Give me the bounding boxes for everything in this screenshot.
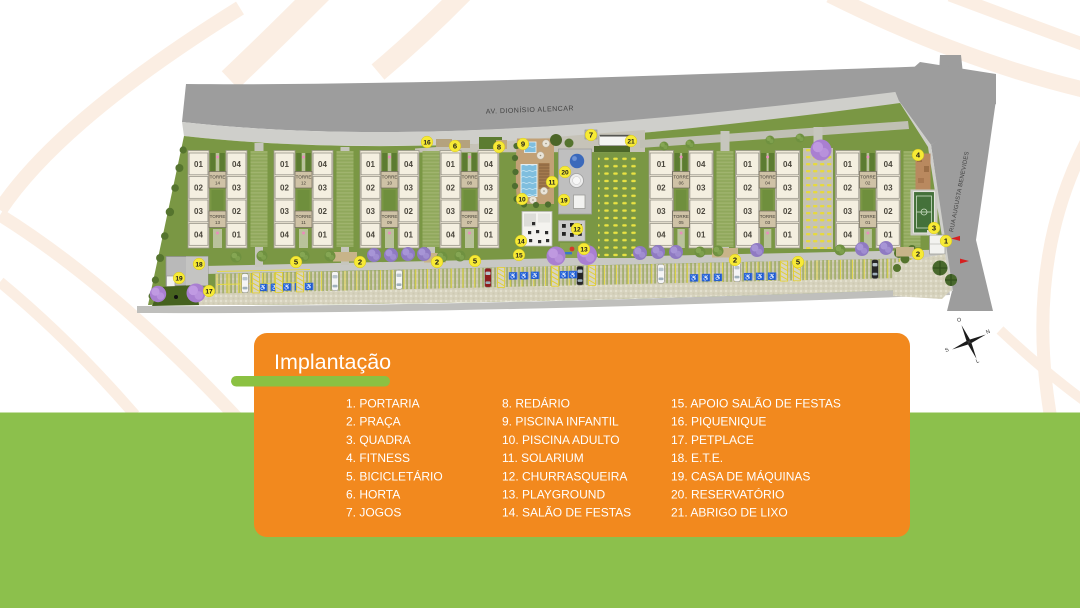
svg-text:04: 04 (446, 230, 455, 239)
svg-text:02: 02 (280, 183, 289, 192)
svg-text:16. PIQUENIQUE: 16. PIQUENIQUE (671, 415, 766, 429)
svg-text:02: 02 (843, 183, 852, 192)
svg-text:01: 01 (843, 160, 852, 169)
svg-text:♿: ♿ (714, 274, 722, 282)
svg-text:12: 12 (301, 181, 307, 186)
svg-text:♿: ♿ (259, 284, 267, 292)
svg-text:10: 10 (387, 181, 393, 186)
svg-text:♿: ♿ (744, 273, 752, 281)
svg-text:♿: ♿ (768, 272, 776, 280)
svg-text:02: 02 (404, 207, 413, 216)
svg-text:9. PISCINA INFANTIL: 9. PISCINA INFANTIL (502, 415, 619, 429)
svg-text:7. JOGOS: 7. JOGOS (346, 506, 401, 520)
svg-text:04: 04 (743, 230, 752, 239)
svg-text:TORRE: TORRE (382, 175, 398, 180)
svg-text:03: 03 (404, 183, 413, 192)
svg-text:TORRE: TORRE (760, 214, 776, 219)
svg-text:2: 2 (733, 256, 737, 265)
svg-text:08: 08 (467, 181, 473, 186)
svg-text:01: 01 (404, 230, 413, 239)
svg-text:♿: ♿ (305, 283, 313, 291)
svg-text:02: 02 (697, 207, 706, 216)
svg-text:TORRE: TORRE (860, 175, 876, 180)
svg-text:♿: ♿ (531, 272, 539, 280)
svg-text:04: 04 (697, 160, 706, 169)
svg-text:2. PRAÇA: 2. PRAÇA (346, 415, 401, 429)
svg-text:01: 01 (366, 160, 375, 169)
svg-text:01: 01 (194, 160, 203, 169)
svg-text:7: 7 (589, 131, 593, 140)
svg-text:TORRE: TORRE (462, 175, 478, 180)
svg-text:12. CHURRASQUEIRA: 12. CHURRASQUEIRA (502, 469, 627, 483)
svg-text:02: 02 (484, 207, 493, 216)
svg-text:TORRE: TORRE (673, 175, 689, 180)
svg-text:03: 03 (884, 183, 893, 192)
svg-text:04: 04 (280, 230, 289, 239)
svg-text:02: 02 (446, 183, 455, 192)
svg-text:6. HORTA: 6. HORTA (346, 488, 400, 502)
svg-text:13: 13 (215, 220, 221, 225)
svg-text:02: 02 (743, 183, 752, 192)
svg-text:05: 05 (679, 220, 685, 225)
svg-text:2: 2 (435, 258, 439, 267)
svg-text:♿: ♿ (509, 272, 517, 280)
svg-text:04: 04 (194, 230, 203, 239)
svg-text:03: 03 (446, 207, 455, 216)
svg-text:02: 02 (232, 207, 241, 216)
svg-text:4. FITNESS: 4. FITNESS (346, 451, 410, 465)
svg-text:18. E.T.E.: 18. E.T.E. (671, 451, 723, 465)
svg-text:04: 04 (404, 160, 413, 169)
svg-text:10. PISCINA ADULTO: 10. PISCINA ADULTO (502, 433, 620, 447)
svg-text:01: 01 (446, 160, 455, 169)
svg-text:TORRE: TORRE (210, 175, 226, 180)
svg-text:03: 03 (366, 207, 375, 216)
svg-text:20. RESERVATÓRIO: 20. RESERVATÓRIO (671, 487, 784, 502)
svg-text:TORRE: TORRE (296, 214, 312, 219)
svg-text:TORRE: TORRE (296, 175, 312, 180)
svg-text:17: 17 (205, 289, 213, 296)
svg-text:14. SALÃO DE FESTAS: 14. SALÃO DE FESTAS (502, 506, 631, 520)
svg-text:15. APOIO SALÃO DE FESTAS: 15. APOIO SALÃO DE FESTAS (671, 397, 841, 411)
svg-text:♿: ♿ (690, 274, 698, 282)
svg-text:♿: ♿ (560, 271, 568, 279)
svg-text:8: 8 (497, 143, 501, 152)
svg-text:02: 02 (194, 183, 203, 192)
svg-text:3. QUADRA: 3. QUADRA (346, 433, 411, 447)
svg-text:2: 2 (358, 258, 362, 267)
svg-text:03: 03 (232, 183, 241, 192)
svg-text:02: 02 (865, 181, 871, 186)
svg-text:04: 04 (484, 160, 493, 169)
svg-text:01: 01 (743, 160, 752, 169)
svg-text:04: 04 (783, 160, 792, 169)
svg-text:01: 01 (697, 230, 706, 239)
svg-text:8. REDÁRIO: 8. REDÁRIO (502, 396, 570, 411)
svg-text:20: 20 (561, 170, 569, 177)
svg-text:09: 09 (387, 220, 393, 225)
svg-text:01: 01 (318, 230, 327, 239)
svg-text:04: 04 (318, 160, 327, 169)
svg-text:TORRE: TORRE (382, 214, 398, 219)
svg-text:11. SOLARIUM: 11. SOLARIUM (502, 451, 584, 465)
svg-text:16: 16 (423, 140, 431, 147)
svg-text:TORRE: TORRE (760, 175, 776, 180)
svg-text:21: 21 (627, 139, 635, 146)
svg-text:03: 03 (194, 207, 203, 216)
svg-text:04: 04 (657, 230, 666, 239)
svg-text:14: 14 (215, 181, 221, 186)
svg-text:11: 11 (301, 220, 306, 225)
svg-text:01: 01 (783, 230, 792, 239)
svg-text:10: 10 (518, 197, 526, 204)
svg-text:9: 9 (521, 140, 525, 149)
svg-text:02: 02 (318, 207, 327, 216)
svg-text:01: 01 (865, 220, 871, 225)
svg-text:19: 19 (560, 198, 568, 205)
svg-text:♿: ♿ (283, 283, 291, 291)
svg-text:03: 03 (843, 207, 852, 216)
svg-text:11: 11 (549, 180, 556, 187)
svg-text:TORRE: TORRE (210, 214, 226, 219)
svg-text:19: 19 (175, 276, 183, 283)
svg-text:03: 03 (318, 183, 327, 192)
svg-text:01: 01 (280, 160, 289, 169)
svg-text:04: 04 (366, 230, 375, 239)
svg-text:13: 13 (580, 247, 588, 254)
svg-text:3: 3 (932, 224, 936, 233)
svg-text:♿: ♿ (569, 271, 577, 279)
svg-text:03: 03 (697, 183, 706, 192)
svg-text:2: 2 (916, 250, 920, 259)
svg-text:04: 04 (843, 230, 852, 239)
svg-text:01: 01 (657, 160, 666, 169)
svg-text:TORRE: TORRE (860, 214, 876, 219)
svg-text:14: 14 (517, 239, 525, 246)
svg-text:02: 02 (657, 183, 666, 192)
svg-text:21. ABRIGO DE LIXO: 21. ABRIGO DE LIXO (671, 506, 788, 520)
svg-text:TORRE: TORRE (462, 214, 478, 219)
svg-text:1. PORTARIA: 1. PORTARIA (346, 397, 420, 411)
svg-text:12: 12 (573, 227, 581, 234)
svg-text:19. CASA DE MÁQUINAS: 19. CASA DE MÁQUINAS (671, 468, 810, 483)
svg-text:06: 06 (679, 181, 685, 186)
svg-text:01: 01 (232, 230, 241, 239)
svg-text:♿: ♿ (520, 272, 528, 280)
svg-text:03: 03 (783, 183, 792, 192)
svg-text:03: 03 (765, 220, 771, 225)
svg-text:TORRE: TORRE (673, 214, 689, 219)
svg-text:03: 03 (280, 207, 289, 216)
svg-text:02: 02 (366, 183, 375, 192)
svg-text:02: 02 (884, 207, 893, 216)
svg-text:17. PETPLACE: 17. PETPLACE (671, 433, 754, 447)
svg-text:01: 01 (884, 230, 893, 239)
svg-text:03: 03 (657, 207, 666, 216)
svg-text:18: 18 (195, 262, 203, 269)
svg-text:Implantação: Implantação (274, 350, 391, 374)
svg-text:15: 15 (515, 253, 523, 260)
svg-text:5. BICICLETÁRIO: 5. BICICLETÁRIO (346, 468, 443, 483)
svg-text:03: 03 (743, 207, 752, 216)
svg-text:02: 02 (783, 207, 792, 216)
svg-text:04: 04 (232, 160, 241, 169)
svg-text:6: 6 (453, 142, 457, 151)
svg-text:03: 03 (484, 183, 493, 192)
svg-text:04: 04 (884, 160, 893, 169)
svg-text:01: 01 (484, 230, 493, 239)
svg-text:04: 04 (765, 181, 771, 186)
svg-text:♿: ♿ (756, 273, 764, 281)
svg-text:13. PLAYGROUND: 13. PLAYGROUND (502, 488, 605, 502)
svg-text:07: 07 (467, 220, 473, 225)
svg-text:♿: ♿ (702, 274, 710, 282)
